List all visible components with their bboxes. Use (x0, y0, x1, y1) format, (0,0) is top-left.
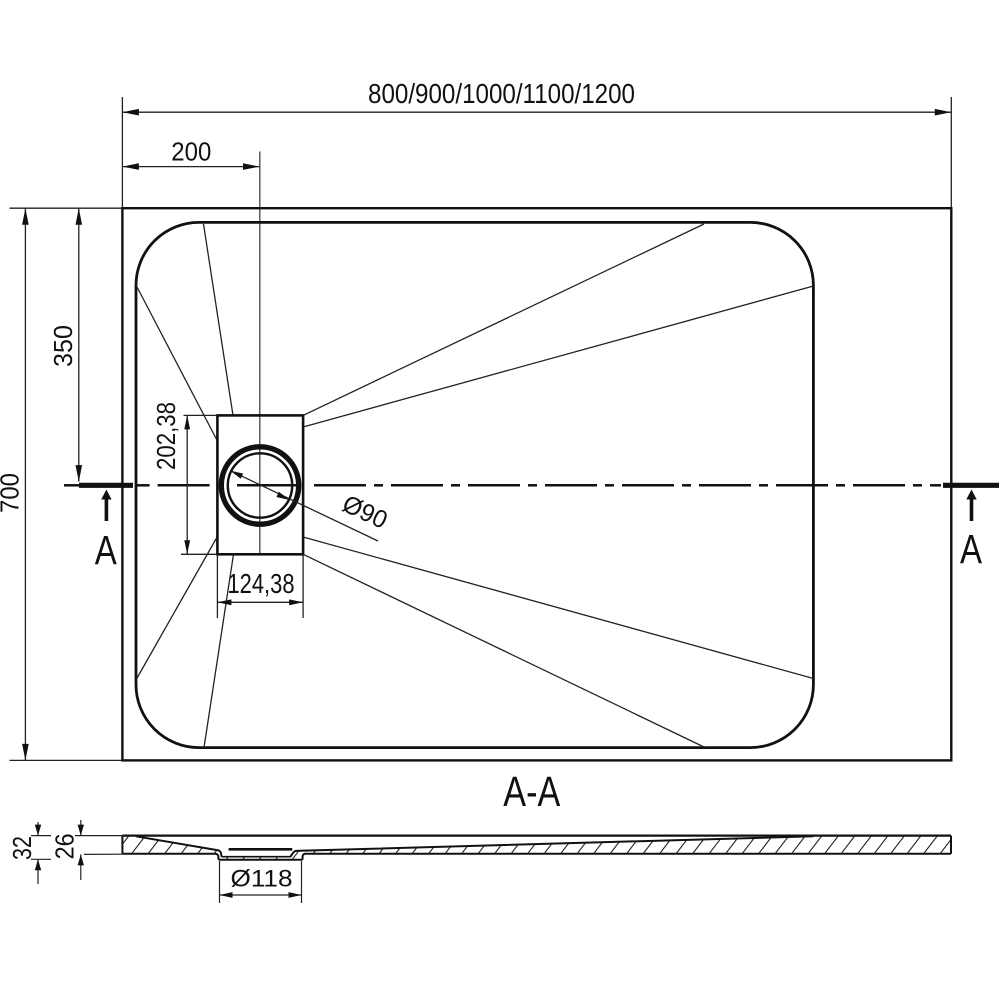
svg-text:32: 32 (7, 836, 37, 860)
svg-text:350: 350 (48, 325, 78, 367)
svg-text:700: 700 (0, 473, 25, 513)
svg-text:Ø118: Ø118 (231, 866, 293, 893)
svg-text:A: A (95, 527, 118, 573)
svg-text:800/900/1000/1100/1200: 800/900/1000/1100/1200 (368, 78, 635, 109)
svg-text:202,38: 202,38 (151, 402, 181, 470)
svg-text:Ø90: Ø90 (338, 490, 392, 535)
svg-text:26: 26 (50, 833, 80, 859)
svg-text:124,38: 124,38 (228, 568, 295, 599)
svg-text:A: A (960, 526, 983, 572)
svg-text:A-A: A-A (503, 768, 560, 816)
svg-text:200: 200 (171, 137, 211, 167)
